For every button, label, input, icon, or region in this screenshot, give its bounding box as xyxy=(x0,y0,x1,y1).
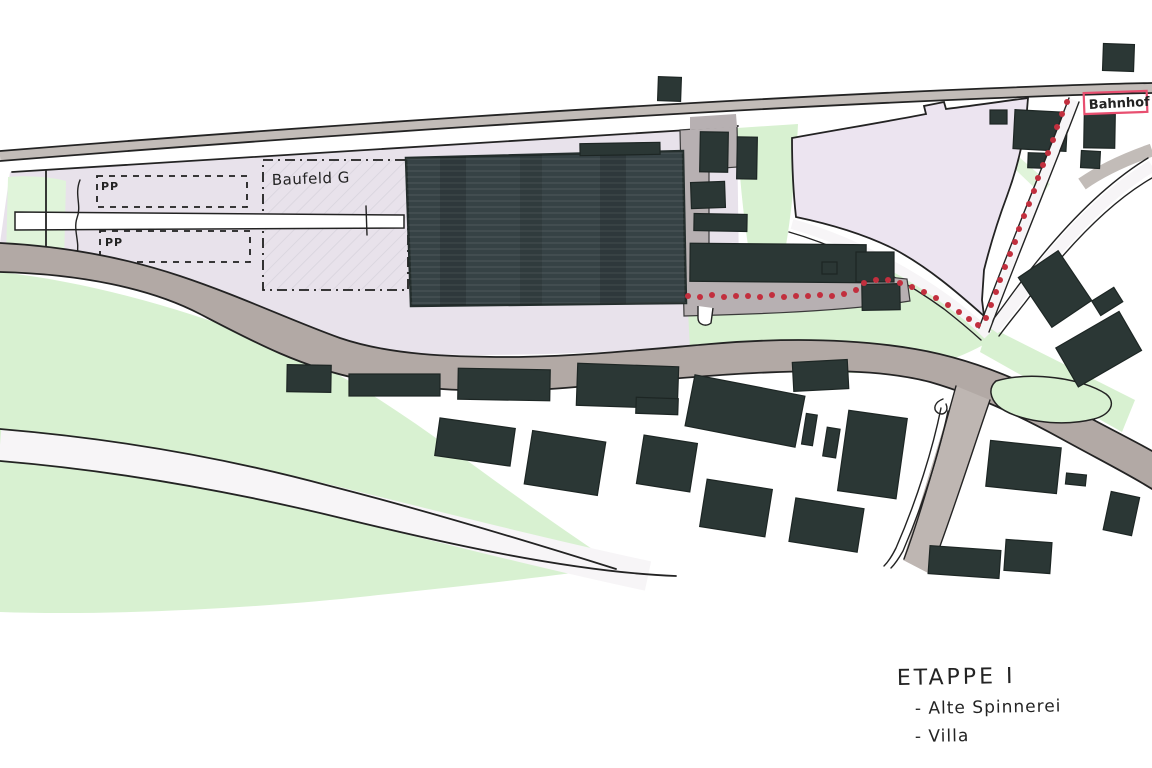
building xyxy=(700,479,773,537)
building xyxy=(580,142,660,155)
building xyxy=(1084,114,1116,149)
etappe-item-2: - Villa xyxy=(915,726,970,747)
building xyxy=(928,546,1001,579)
main-hall-building xyxy=(406,151,686,307)
pp-label-1: PP xyxy=(101,180,119,193)
etappe-title: ETAPPE I xyxy=(897,664,1016,691)
building xyxy=(636,397,679,414)
site-plan-sketch: Baufeld G PP PP xyxy=(0,0,1152,768)
building xyxy=(838,410,908,498)
building xyxy=(691,181,726,208)
building xyxy=(1103,43,1135,71)
building xyxy=(1065,473,1086,486)
etappe-item-1: - Alte Spinnerei xyxy=(915,696,1062,719)
baufeld-label: Baufeld G xyxy=(272,168,351,189)
building xyxy=(349,374,440,396)
building xyxy=(1081,151,1101,169)
building xyxy=(658,77,682,102)
building xyxy=(636,435,697,492)
building xyxy=(458,368,551,401)
bahnhof-label: Bahnhof xyxy=(1088,95,1150,113)
building xyxy=(792,360,848,392)
building xyxy=(822,262,837,274)
building xyxy=(1004,539,1052,573)
building xyxy=(694,214,747,232)
pp-label-2: PP xyxy=(105,236,123,249)
building xyxy=(287,365,331,393)
building xyxy=(700,132,729,172)
building xyxy=(986,440,1061,493)
site-plan-map: Baufeld G PP PP xyxy=(0,0,1152,768)
building xyxy=(524,431,606,496)
building xyxy=(990,110,1007,124)
building xyxy=(737,137,758,179)
